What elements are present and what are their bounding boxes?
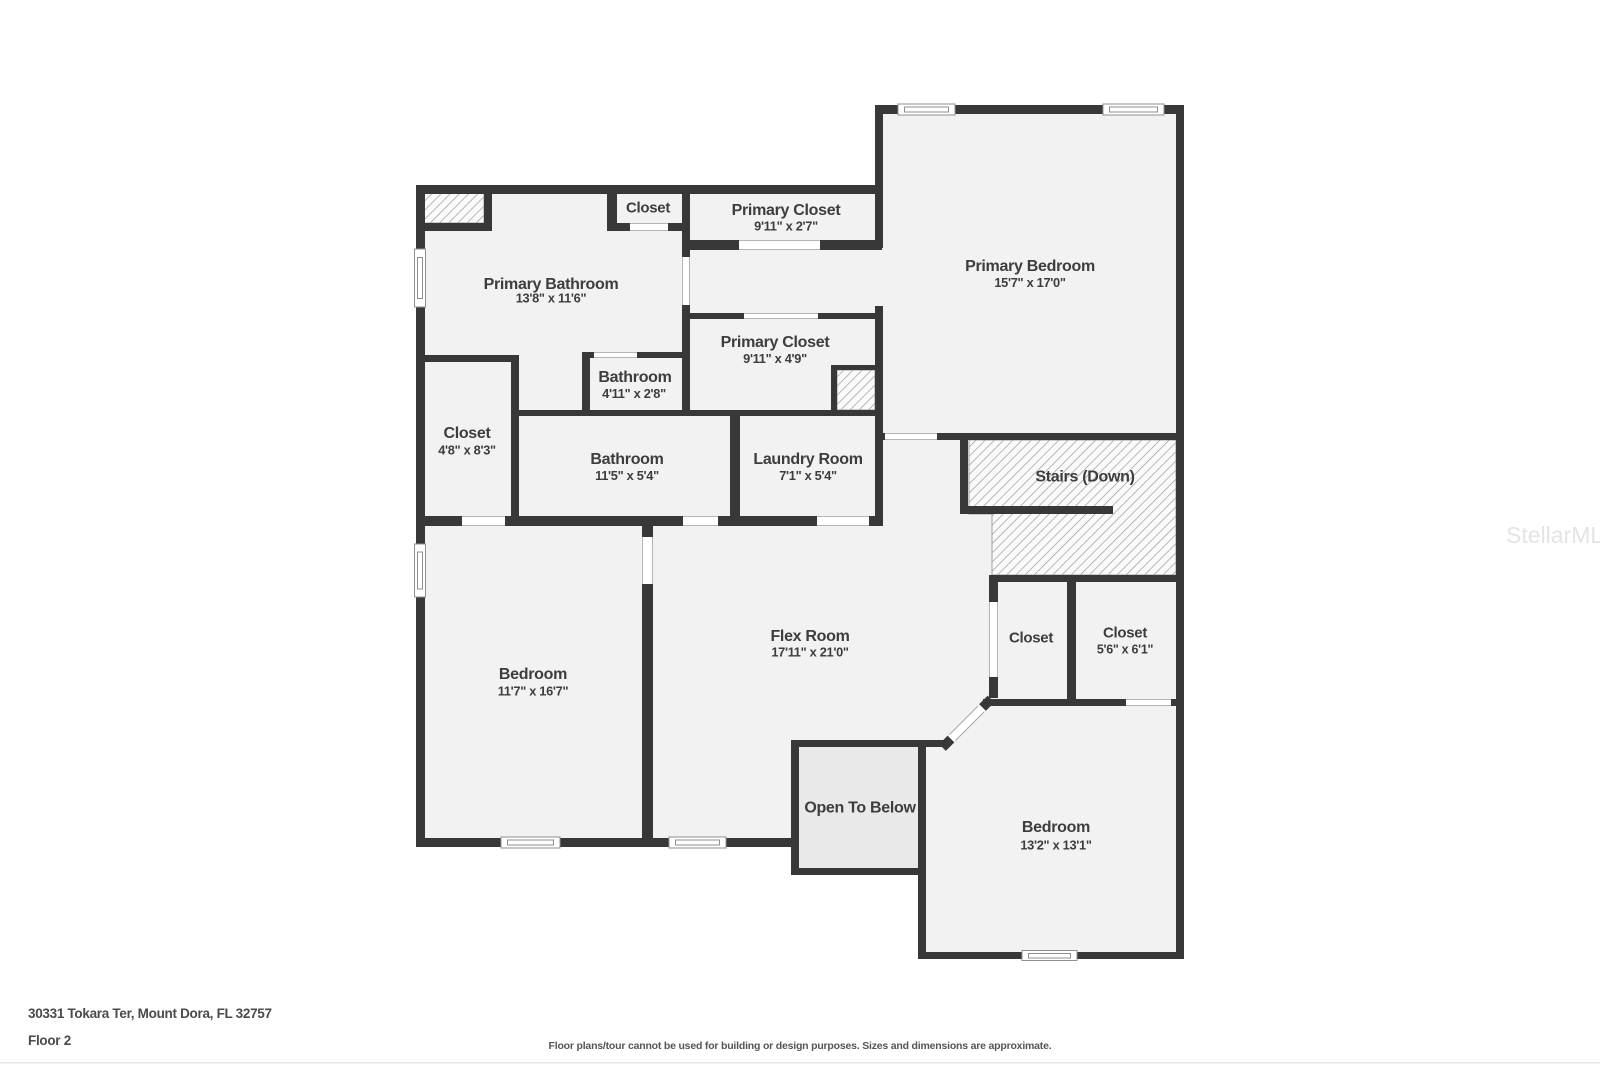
svg-text:5'6" x 6'1": 5'6" x 6'1" [1097, 643, 1154, 657]
svg-text:15'7" x 17'0": 15'7" x 17'0" [994, 275, 1065, 290]
svg-text:Closet: Closet [1103, 625, 1147, 642]
svg-text:Closet: Closet [443, 425, 491, 442]
svg-text:9'11" x 4'9": 9'11" x 4'9" [743, 351, 807, 366]
svg-text:Bedroom: Bedroom [1022, 819, 1090, 836]
svg-text:4'11" x 2'8": 4'11" x 2'8" [602, 386, 666, 401]
svg-text:Bathroom: Bathroom [598, 369, 671, 386]
svg-text:Floor plans/tour cannot be use: Floor plans/tour cannot be used for buil… [549, 1040, 1052, 1052]
svg-text:Closet: Closet [626, 200, 670, 217]
svg-text:Bathroom: Bathroom [590, 451, 663, 468]
svg-text:Primary Closet: Primary Closet [721, 334, 831, 351]
svg-text:StellarMLS: StellarMLS [1506, 522, 1600, 548]
svg-text:Stairs (Down): Stairs (Down) [1035, 469, 1134, 486]
svg-text:Flex Room: Flex Room [770, 628, 849, 645]
svg-text:11'5" x 5'4": 11'5" x 5'4" [595, 468, 659, 483]
svg-text:Bedroom: Bedroom [499, 666, 567, 683]
svg-text:Primary Bedroom: Primary Bedroom [965, 258, 1095, 275]
svg-text:13'2" x 13'1": 13'2" x 13'1" [1020, 838, 1091, 853]
svg-text:Laundry Room: Laundry Room [753, 451, 862, 468]
svg-text:9'11" x 2'7": 9'11" x 2'7" [754, 219, 818, 234]
svg-text:13'8" x 11'6": 13'8" x 11'6" [516, 291, 587, 306]
svg-text:Open To Below: Open To Below [804, 800, 916, 817]
svg-text:30331 Tokara Ter, Mount Dora,: 30331 Tokara Ter, Mount Dora, FL 32757 [28, 1006, 272, 1021]
svg-text:Primary Closet: Primary Closet [732, 202, 842, 219]
svg-text:Closet: Closet [1009, 630, 1053, 647]
svg-text:4'8" x 8'3": 4'8" x 8'3" [438, 443, 496, 458]
svg-text:Floor 2: Floor 2 [28, 1033, 71, 1048]
svg-text:17'11" x 21'0": 17'11" x 21'0" [771, 645, 849, 660]
svg-text:7'1" x 5'4": 7'1" x 5'4" [779, 468, 837, 483]
svg-text:11'7" x 16'7": 11'7" x 16'7" [498, 684, 569, 699]
